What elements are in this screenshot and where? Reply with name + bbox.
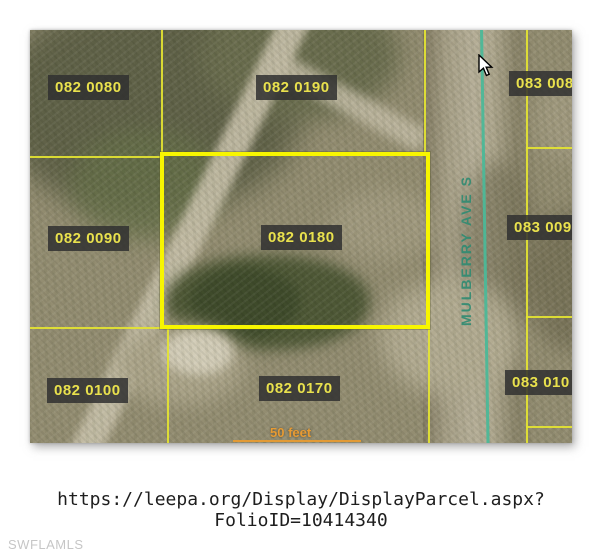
parcel-line bbox=[161, 30, 163, 158]
parcel-line bbox=[526, 316, 572, 318]
parcel-label: 082 0190 bbox=[256, 75, 337, 100]
url-line-1: https://leepa.org/Display/DisplayParcel.… bbox=[0, 489, 602, 510]
scale-label: 50 feet bbox=[270, 425, 311, 440]
parcel-label: 083 008 bbox=[509, 71, 572, 96]
scale-bar bbox=[233, 440, 361, 442]
parcel-line bbox=[526, 426, 572, 428]
parcel-label: 082 0170 bbox=[259, 376, 340, 401]
parcel-line bbox=[526, 147, 572, 149]
parcel-label: 082 0100 bbox=[47, 378, 128, 403]
parcel-map[interactable]: MULBERRY AVE S 082 0080 082 0190 083 008… bbox=[30, 30, 572, 443]
parcel-line bbox=[167, 328, 169, 443]
parcel-line bbox=[424, 30, 426, 156]
parcel-url-caption: https://leepa.org/Display/DisplayParcel.… bbox=[0, 489, 602, 531]
parcel-label: 082 0080 bbox=[48, 75, 129, 100]
parcel-label: 082 0090 bbox=[48, 226, 129, 251]
url-line-2: FolioID=10414340 bbox=[0, 510, 602, 531]
page: { "map": { "labels": [ {"text": "082 008… bbox=[0, 0, 602, 557]
parcel-label: 083 009 bbox=[507, 215, 572, 240]
parcel-label: 083 010 bbox=[505, 370, 572, 395]
parcel-line bbox=[30, 327, 170, 329]
street-name-label: MULBERRY AVE S bbox=[458, 148, 476, 326]
parcel-label-selected: 082 0180 bbox=[261, 225, 342, 250]
parcel-line bbox=[30, 156, 163, 158]
mouse-cursor-icon bbox=[478, 54, 494, 78]
parcel-line bbox=[428, 325, 430, 443]
watermark-swflamls: SWFLAMLS bbox=[8, 537, 84, 552]
